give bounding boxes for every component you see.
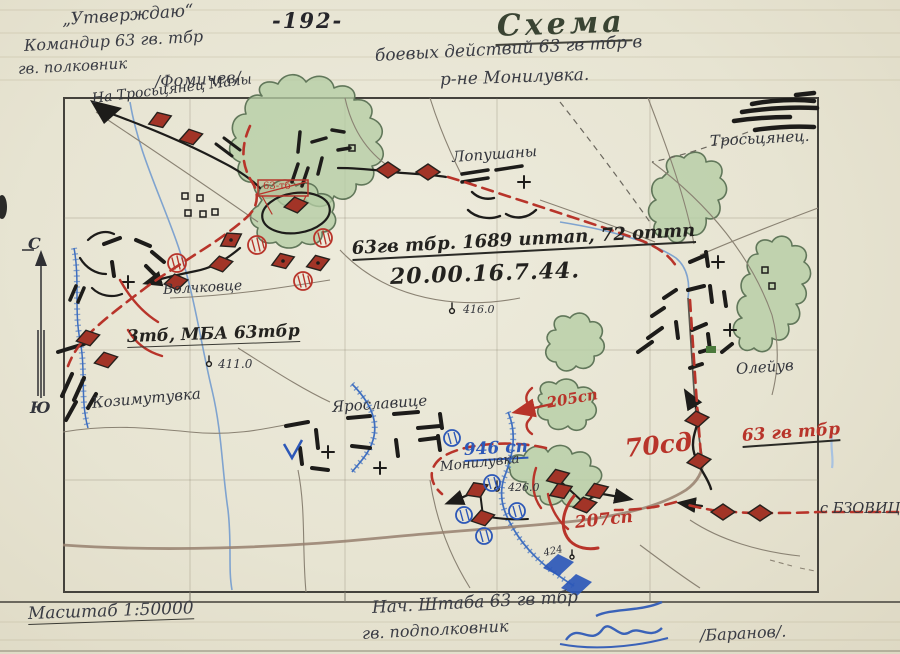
compass-south-label: Ю [30, 400, 51, 416]
label-height-416: 416.0 [463, 304, 495, 315]
scanned-map-page: „Утверждаю“ Командир 63 гв. тбр гв. полк… [0, 0, 900, 654]
footer-signature: /Баранов/. [700, 623, 787, 644]
streams-hatched [74, 248, 574, 586]
page-number: -192- [272, 10, 343, 31]
label-70sd: 70сд [624, 429, 694, 461]
compass-north-label: С [28, 236, 41, 252]
label-volchkovce: Волчковце [163, 279, 243, 297]
label-height-426: 426.0 [508, 482, 540, 493]
label-63tb-flag: 63-тб [263, 182, 291, 192]
label-oleyuv: Олейув [735, 358, 794, 377]
label-datetime: 20.00.16.7.44. [390, 259, 581, 288]
label-height-411: 411.0 [218, 358, 252, 370]
compass-arrow [22, 250, 47, 398]
label-bzovice: с БЗОВИЦЕ [820, 502, 900, 517]
